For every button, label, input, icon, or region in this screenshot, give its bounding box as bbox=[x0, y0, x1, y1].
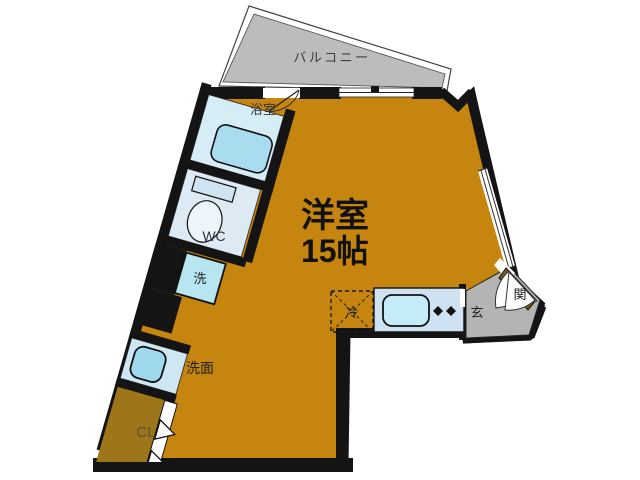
wall-segment-vertical bbox=[336, 328, 347, 466]
main-room-size: 15帖 bbox=[301, 233, 369, 269]
floor-plan-canvas: バルコニー bbox=[0, 0, 640, 480]
vanity-label: 洗面 bbox=[186, 360, 214, 376]
entrance-label-char2: 関 bbox=[513, 287, 526, 302]
entrance-label-char1: 玄 bbox=[470, 305, 483, 320]
kitchen-sink bbox=[383, 295, 429, 326]
entry-door-gap bbox=[460, 289, 465, 307]
main-room-label: 洋室 bbox=[301, 196, 369, 235]
wall-segment bbox=[299, 87, 341, 99]
window-sash-lock bbox=[371, 86, 379, 92]
washer-label: 洗 bbox=[193, 271, 206, 286]
floor-plan: バルコニー bbox=[0, 0, 640, 480]
wc-label: WC bbox=[202, 228, 225, 244]
bath-label: 浴室 bbox=[250, 102, 276, 117]
balcony-window bbox=[339, 86, 414, 97]
balcony-label: バルコニー bbox=[293, 50, 370, 65]
closet-label: CL bbox=[136, 424, 155, 441]
wall-segment bbox=[412, 87, 442, 99]
fridge-label: 冷 bbox=[345, 305, 358, 320]
